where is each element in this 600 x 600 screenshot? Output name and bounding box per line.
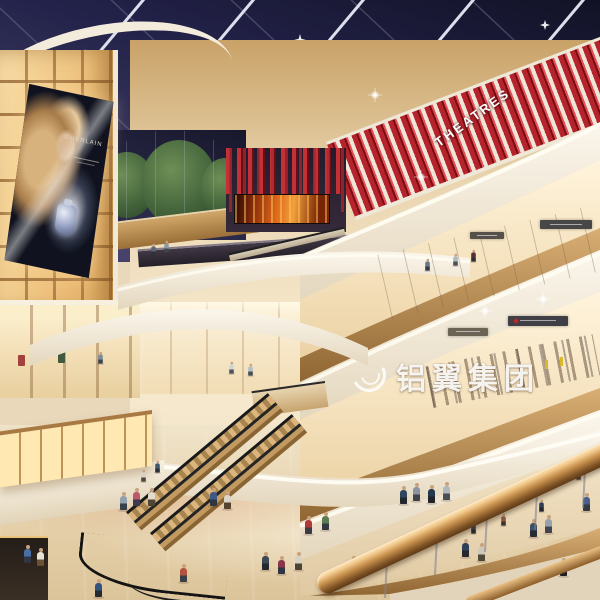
person-figure [164,243,169,252]
person-figure [545,519,552,533]
person-figure [151,246,156,255]
person-figure [295,556,302,570]
person-figure [95,583,102,597]
person-figure [155,463,160,472]
person-figure [471,252,476,261]
person-figure [148,492,155,506]
person-figure [453,256,458,265]
person-figure [133,492,140,506]
watermark-text: 铝翼集团 [396,354,540,398]
developer-watermark: 铝翼集团 [352,344,582,404]
person-figure [501,516,506,525]
person-figure [278,560,285,574]
store-sign [448,328,488,336]
store-sign [540,220,592,229]
person-figure [141,472,146,481]
light-sparkle [368,88,382,102]
person-figure [305,520,312,534]
person-figure [120,496,127,510]
person-figure [210,492,217,506]
person-figure [462,543,469,557]
mall-atrium-scene: THEATRES GUERLAIN [0,0,600,600]
person-figure [180,568,187,582]
person-figure [262,556,269,570]
person-figure [37,552,44,566]
person-figure [322,516,329,530]
person-figure [248,366,253,375]
light-sparkle [478,304,492,318]
person-figure [98,354,103,363]
person-figure [224,495,231,509]
person-figure [425,261,430,270]
person-figure [539,502,544,511]
light-sparkle [536,292,550,306]
person-figure [413,487,420,501]
person-figure [428,489,435,503]
person-figure [229,364,234,373]
person-figure [443,486,450,500]
store-sign [470,232,504,239]
person-figure [24,549,31,563]
dark-storefront [0,536,48,600]
light-sparkle [414,170,428,184]
person-figure [400,490,407,504]
